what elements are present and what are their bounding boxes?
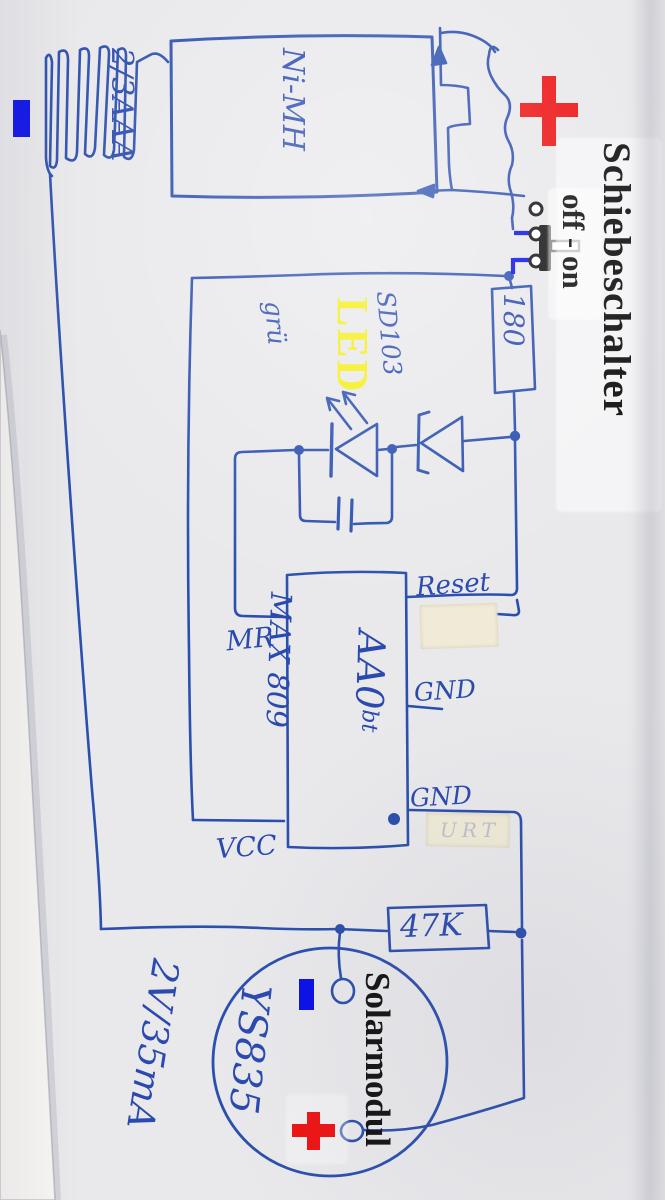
ic-pin-gnd-lower: GND [409,780,472,812]
resistor-47k-label: 47K [399,907,463,945]
wire-to-switch [488,47,513,229]
junction-dot [516,928,527,939]
solar-plus-marker [292,1112,335,1150]
ic-marking: AA0 [347,630,394,711]
diode-type: SD103 [366,289,414,414]
wire-solar-minus-stub [339,932,341,978]
wire-resistor-to-j1 [514,393,515,430]
battery-lead-arc [441,32,495,52]
led-cathode-bar [331,424,332,476]
switch-caption: Schiebeschalter [594,142,639,514]
diode-label: SD103 grü [403,283,489,411]
switch-terminal-off [530,203,542,215]
battery-lead-top [440,28,470,190]
wire-diode-to-n2 [396,445,416,447]
cap-plate [338,498,339,529]
battery-line: Ni-MH [264,48,321,198]
diode-note: grü [254,299,302,424]
switch-terminal-on [530,255,542,267]
wire-vcc-top [192,273,505,278]
schematic-photo: URT Schiebeschalter off - on LED Solarmo… [0,0,665,1200]
diode-sd103-triangle [421,417,463,471]
tape-ghost-text: URT [440,818,500,842]
ic-pin-vcc: VCC [215,830,278,865]
ic-pin-mr: MR [225,622,276,658]
paper-edge [0,330,55,1200]
solar-minus-terminal [332,979,354,1003]
led-anode-wire [378,449,388,450]
battery-lead-bottom [425,190,524,196]
resistor-180-label: 180 [497,293,530,387]
switch-positions-caption: off - on [555,194,591,322]
wire-reset-stub [497,600,519,615]
ic-pin-gnd-upper: GND [413,674,477,707]
battery-plus-marker [520,76,578,146]
wire-47k-right [489,931,515,932]
ic-pin-reset: Reset [415,567,491,602]
junction-dot [510,431,520,441]
led-triangle [336,424,377,476]
wire-left-outer-rail [50,174,101,929]
solar-minus-marker [299,979,314,1010]
battery-line: 2/3AAA [93,48,150,198]
solar-caption: Solarmodul [357,972,397,1184]
cap-plate [351,500,352,531]
ic-marking-suffix: bt [356,709,382,733]
switch-terminal-mid [530,228,542,240]
wire-j1-to-diode [464,437,510,441]
battery-label: Ni-MH 2/3AAA 200mAh 1,2 V [205,48,435,198]
